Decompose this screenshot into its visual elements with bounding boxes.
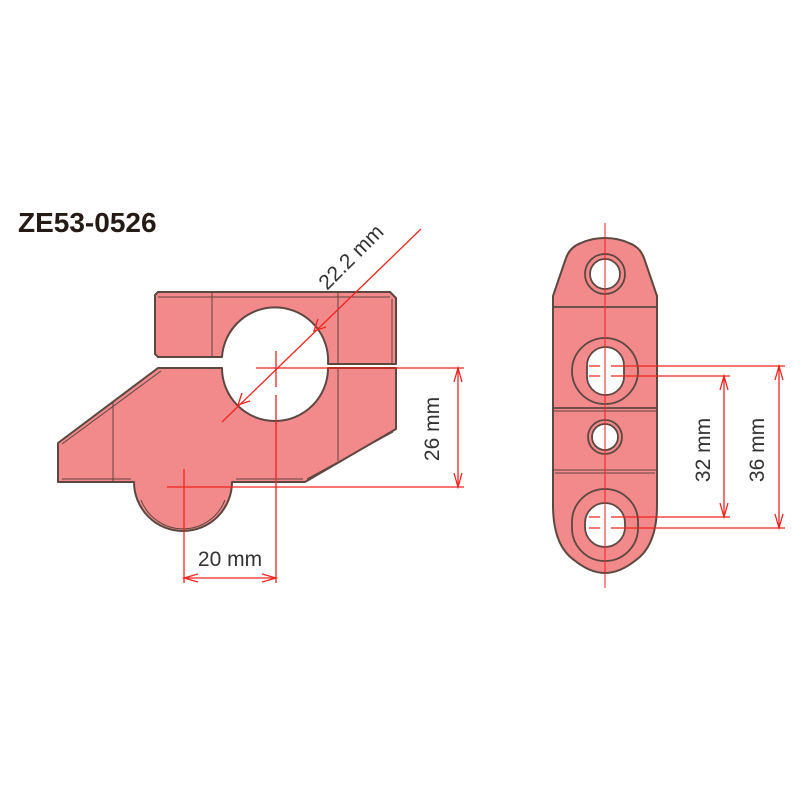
dim-label-hole-spacing-max: 36 mm <box>746 418 769 482</box>
dim-label-riser-height: 26 mm <box>421 397 444 461</box>
drawing-canvas: 22.2 mm 26 mm 20 mm 32 mm <box>0 0 800 800</box>
dimension-riser-setback: 20 mm <box>184 548 276 582</box>
dimension-annotations: 22.2 mm 26 mm 20 mm 32 mm <box>167 220 785 588</box>
dim-label-hole-spacing-min: 32 mm <box>692 418 715 482</box>
technical-drawing: ZE53-0526 <box>0 0 800 800</box>
dim-label-riser-setback: 20 mm <box>198 548 262 571</box>
centerlines <box>167 223 785 588</box>
riser-body <box>58 368 396 531</box>
arrowhead <box>238 393 250 405</box>
dimension-hole-spacing-max: 36 mm <box>746 366 783 528</box>
dimension-riser-height: 26 mm <box>421 368 462 487</box>
side-view <box>58 292 396 531</box>
dim-label-bore-diameter: 22.2 mm <box>314 220 388 294</box>
dimension-hole-spacing-min: 32 mm <box>692 376 728 517</box>
